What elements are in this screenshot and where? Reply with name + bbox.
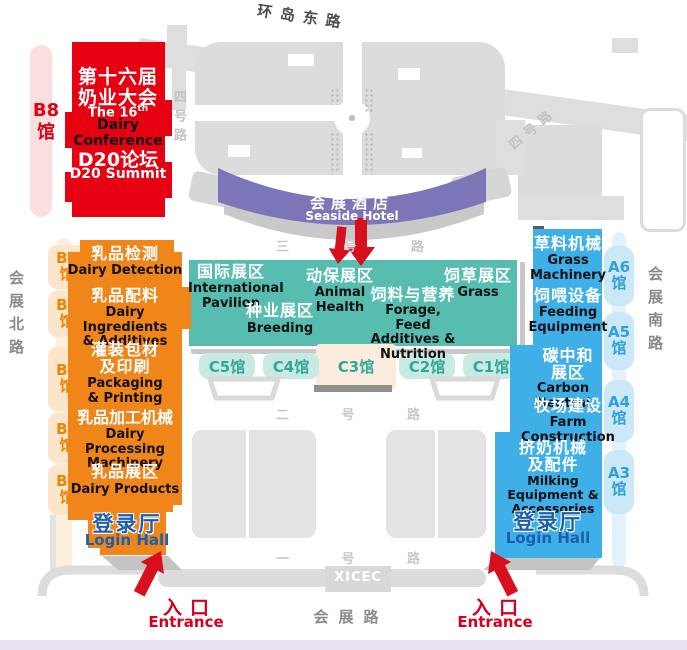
zone-products-en: Dairy Products [66, 483, 184, 498]
exhibition-map: B7馆 B6馆 B5馆 B4馆 B3馆 A6馆 A5馆 A4馆 A3馆 C5馆 … [0, 0, 687, 650]
hall-suffix: 馆 [611, 276, 626, 292]
building-shape [398, 68, 420, 80]
summit-en: D20 Summit [63, 166, 173, 182]
building-shape [518, 196, 624, 220]
zone-feeding-cn: 饲喂设备 [530, 288, 606, 305]
path-shape [195, 105, 343, 121]
fountain-dot [349, 115, 355, 121]
zone-processing-cn: 乳品加工机械 [66, 410, 184, 427]
hall-pill-c4: C4馆 [263, 353, 319, 379]
zone-farm-cn: 牧场建设 [528, 398, 608, 415]
lavender-strip [0, 640, 687, 650]
zone-ingredients-cn: 乳品配料 [70, 288, 180, 305]
tree-dots [330, 132, 339, 172]
road-label-north: 会展北路 [6, 270, 27, 362]
zone-forage-en: Forage, Feed Additives & Nutrition [370, 304, 456, 362]
west-login-hall-en: Login Hall [72, 531, 182, 549]
zone-detection-cn: 乳品检测 [70, 246, 180, 263]
road-label-bottom: 会展路 [295, 606, 407, 627]
building-shape [167, 25, 187, 45]
east-block-shadow [483, 558, 600, 570]
building-divider [246, 430, 249, 538]
zone-breeding-en: Breeding [240, 322, 320, 337]
building-outline [210, 379, 278, 398]
zone-feeding-en: Feeding Equipment [523, 306, 613, 335]
arrow-up-icon [479, 545, 524, 600]
road-label-no3: 三号路 [276, 236, 424, 255]
tree-dots [364, 88, 373, 112]
xicec-label: XICEC [325, 570, 391, 585]
zone-intl-cn: 国际展区 [192, 264, 270, 281]
building-outline [432, 379, 498, 398]
zone-grass-en: Grass [443, 286, 513, 301]
zone-packaging-cn: 灌装包材 及印刷 [70, 342, 180, 376]
zone-packaging-en: Packaging & Printing [70, 377, 180, 406]
east-login-hall-en: Login Hall [500, 529, 596, 547]
road-label-south: 会展南路 [645, 266, 666, 358]
zone-animal-en: Animal Health [303, 286, 377, 315]
building-shape [228, 145, 250, 157]
road-curve [536, 570, 644, 596]
tree-dots [364, 132, 373, 172]
zone-animal-cn: 动保展区 [303, 268, 377, 285]
hall-pill-c1: C1馆 [463, 353, 519, 379]
building-shape [402, 148, 422, 158]
zone-grass-cn: 饲草展区 [443, 268, 513, 285]
building-divider [435, 430, 438, 538]
building-shape [640, 108, 686, 232]
hotel-wing-shape [188, 170, 251, 211]
entrance-right-en: Entrance [454, 613, 536, 631]
zone-grassmach-cn: 草料机械 [530, 236, 606, 253]
hall-pill-c5: C5馆 [199, 353, 255, 379]
building-shape [612, 38, 638, 53]
zone-grassmach-en: Grass Machinery [523, 254, 613, 283]
xicec-band [158, 569, 486, 587]
zone-carbon-cn: 碳中和 展区 [533, 348, 603, 382]
road-label-huandao-east: 环岛东路 [237, 0, 369, 36]
west-block-shadow [102, 556, 182, 570]
hall-suffix: 馆 [611, 341, 626, 357]
hotel-name-en: Seaside Hotel [272, 209, 432, 223]
zone-milking-cn: 挤奶机械 及配件 [508, 440, 598, 474]
road-label-no2: 二号路 [276, 404, 420, 423]
entrance-left-en: Entrance [145, 613, 227, 631]
superscript: th [137, 104, 148, 114]
building-shape [192, 430, 316, 538]
zone-products-cn: 乳品展区 [70, 464, 180, 481]
zone-detection-en: Dairy Detection [66, 264, 184, 279]
building-shape [386, 430, 486, 538]
road-curve [42, 570, 150, 596]
road-label-no1: 一号路 [276, 548, 420, 567]
building-shape [288, 54, 314, 66]
